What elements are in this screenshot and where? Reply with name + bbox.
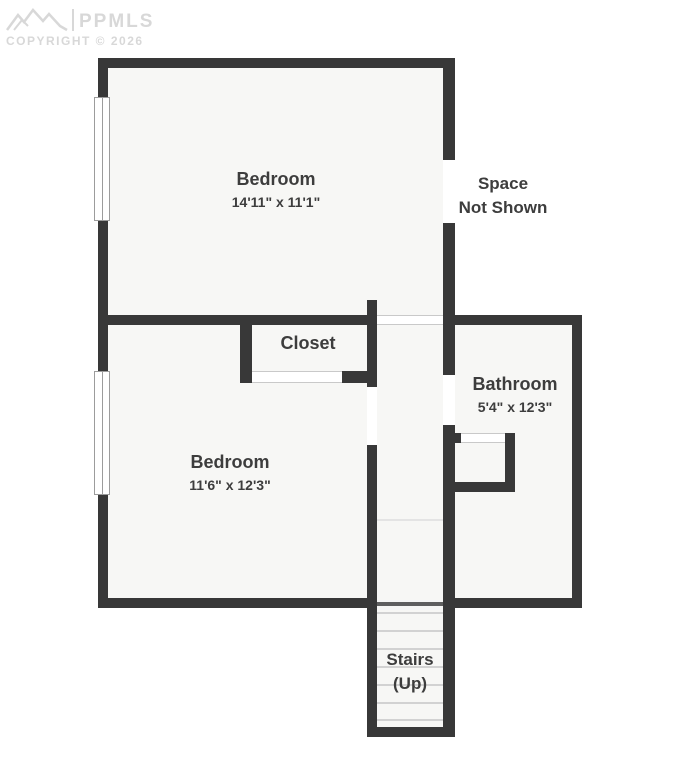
bedroom-lower-label: Bedroom [130, 452, 330, 473]
stair-tread [377, 702, 443, 704]
stair-tread [377, 630, 443, 632]
wall [443, 598, 582, 608]
door-opening-closet [252, 371, 342, 383]
space-not-shown-line1: Space [443, 174, 563, 194]
wall [342, 371, 377, 383]
wall [98, 315, 582, 325]
space-not-shown-line2: Not Shown [443, 198, 563, 218]
wall [240, 371, 252, 383]
stair-landing-edge [377, 602, 443, 606]
bedroom-upper-dimensions: 14'11" x 11'1" [176, 194, 376, 210]
wall [367, 727, 455, 737]
stairs-label: Stairs [377, 650, 443, 670]
wall [367, 300, 377, 737]
room-floor-bedroom-upper [108, 68, 443, 315]
wall [572, 315, 582, 608]
stair-tread [377, 719, 443, 721]
bathroom-dimensions: 5'4" x 12'3" [455, 399, 575, 415]
watermark: PPMLS COPYRIGHT © 2026 [6, 4, 236, 50]
shower-wall [455, 482, 515, 492]
bedroom-lower-dimensions: 11'6" x 12'3" [130, 477, 330, 493]
mountains-icon [6, 6, 68, 34]
wall [98, 598, 377, 608]
window-pane-line [102, 98, 103, 220]
watermark-divider [72, 9, 74, 31]
stair-tread [377, 612, 443, 614]
window-symbol [94, 97, 110, 221]
door-opening-stair-landing [377, 315, 443, 325]
door-opening-bathroom [443, 375, 455, 425]
door-opening-bedroom-lower [367, 387, 377, 445]
closet-label: Closet [258, 333, 358, 354]
wall [98, 58, 455, 68]
watermark-brand: PPMLS [79, 11, 154, 33]
bedroom-upper-label: Bedroom [176, 169, 376, 190]
door-opening-shower [461, 433, 505, 443]
floor-plan: PPMLS COPYRIGHT © 2026 Bedroom 14'11" [0, 0, 693, 768]
watermark-copyright: COPYRIGHT © 2026 [6, 34, 144, 48]
bathroom-label: Bathroom [455, 374, 575, 395]
window-symbol [94, 371, 110, 495]
window-pane-line [102, 372, 103, 494]
stair-tread [377, 519, 443, 521]
stairs-direction-label: (Up) [377, 674, 443, 694]
